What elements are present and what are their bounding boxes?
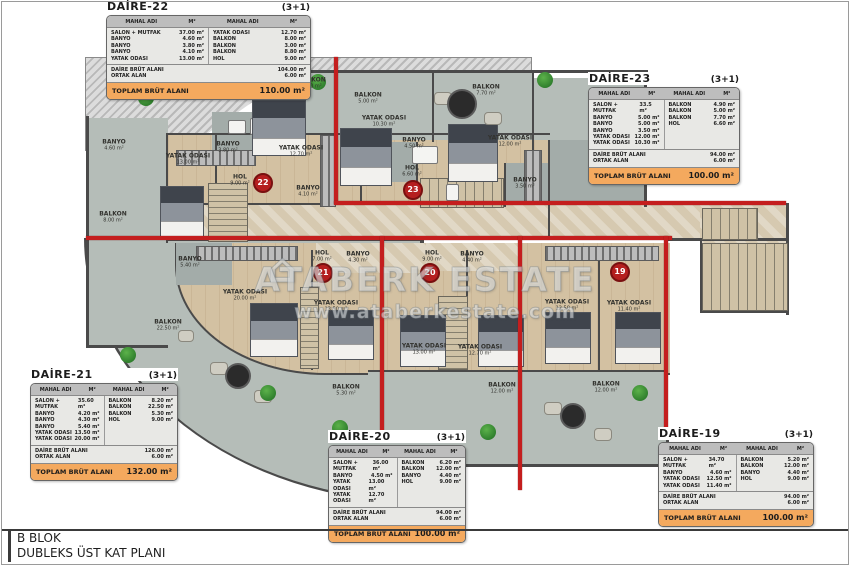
room-label-area: 8.00 m²: [99, 219, 127, 225]
room-row: SALON + MUTFAK35.60 m²: [35, 398, 100, 411]
table-summary: DAİRE BRÜT ALANI94.00 m²ORTAK ALAN6.00 m…: [589, 149, 739, 167]
unit-type: (3+1): [282, 3, 310, 13]
room-label-area: 5.40 m²: [178, 264, 201, 270]
unit-header: DAİRE-23(3+1): [588, 72, 740, 85]
unit-number-badge: 20: [420, 263, 440, 283]
room-row: YATAK ODASI13.00 m²: [111, 56, 204, 62]
wall: [532, 72, 534, 152]
room-label: HOL9.00 m²: [422, 251, 442, 264]
unit-area-table: MAHAL ADIM²MAHAL ADIM²SALON + MUTFAK35.6…: [30, 383, 178, 481]
room-name: HOL: [741, 476, 753, 482]
bed: [448, 124, 498, 182]
room-label-area: 4.50 m²: [402, 145, 425, 151]
staircase: [702, 243, 788, 311]
room-label: BALKON5.00 m²: [354, 93, 382, 106]
room-area: 33.5 m²: [639, 102, 659, 115]
unit-divider-line: [664, 236, 668, 430]
unit-divider-line: [518, 236, 522, 490]
table-summary: DAİRE BRÜT ALANI94.00 m²ORTAK ALAN6.00 m…: [659, 491, 813, 509]
room-label: YATAK ODASI12.50 m²: [545, 300, 589, 313]
room-area: 10.30 m²: [635, 140, 660, 146]
column-header: MAHAL ADI: [329, 449, 375, 455]
bed: [400, 315, 446, 367]
room-area: 36.00 m²: [373, 460, 393, 473]
unit-area-table: MAHAL ADIM²MAHAL ADIM²SALON + MUTFAK34.7…: [658, 442, 814, 527]
unit-area-table: MAHAL ADIM²MAHAL ADIM²SALON + MUTFAK33.5…: [588, 87, 740, 185]
total-row: TOPLAM BRÜT ALANI132.00 m²: [31, 463, 177, 480]
unit-type: (3+1): [149, 371, 177, 381]
table-column-headers: MAHAL ADIM²MAHAL ADIM²: [329, 446, 465, 458]
room-label-area: 4.60 m²: [102, 147, 125, 153]
column-header: M²: [443, 449, 465, 455]
table-body: SALON + MUTFAK37.00 m²BANYO4.60 m²BANYO3…: [107, 28, 310, 64]
room-label-area: 4.30 m²: [346, 259, 369, 265]
total-label: TOPLAM BRÜT ALANI: [594, 172, 671, 180]
unit-type: (3+1): [785, 430, 813, 440]
room-label: BANYO4.10 m²: [296, 186, 319, 199]
summary-row: ORTAK ALAN6.00 m²: [111, 73, 306, 79]
summary-label: ORTAK ALAN: [333, 516, 369, 522]
room-name: HOL: [109, 417, 121, 423]
unit-header: DAİRE-19(3+1): [658, 427, 814, 440]
room-row: SALON + MUTFAK36.00 m²: [333, 460, 393, 473]
room-label-area: 5.00 m²: [354, 100, 382, 106]
total-value: 132.00 m²: [127, 467, 173, 476]
room-label: HOL9.00 m²: [230, 175, 250, 188]
unit-title: DAİRE-23: [589, 72, 651, 85]
room-label-area: 13.00 m²: [166, 161, 210, 167]
unit-table-daire-23: DAİRE-23(3+1)MAHAL ADIM²MAHAL ADIM²SALON…: [588, 72, 740, 185]
column-header: MAHAL ADI: [736, 446, 788, 452]
column-header: MAHAL ADI: [209, 19, 277, 25]
room-row: HOL9.00 m²: [741, 476, 810, 482]
column-header: M²: [80, 387, 104, 393]
wall: [598, 250, 600, 370]
bathroom-fixture: [446, 184, 459, 201]
bed: [545, 312, 591, 364]
plant-icon: [480, 424, 496, 440]
column-header: M²: [711, 446, 736, 452]
table-body-column: SALON + MUTFAK36.00 m²BANYO4.50 m²YATAK …: [329, 458, 397, 507]
wall: [86, 116, 89, 348]
room-label-area: 3.80 m²: [216, 149, 239, 155]
unit-title: DAİRE-22: [107, 0, 169, 13]
room-name: YATAK ODASI: [111, 56, 148, 62]
table-body-column: SALON + MUTFAK34.70 m²BANYO4.60 m²YATAK …: [659, 455, 736, 491]
table-body: SALON + MUTFAK34.70 m²BANYO4.60 m²YATAK …: [659, 455, 813, 491]
unit-title: DAİRE-19: [659, 427, 721, 440]
plant-icon: [260, 385, 276, 401]
total-label: TOPLAM BRÜT ALANI: [112, 87, 189, 95]
room-row: SALON + MUTFAK33.5 m²: [593, 102, 660, 115]
summary-row: ORTAK ALAN6.00 m²: [593, 158, 735, 164]
unit-divider-line: [86, 236, 672, 240]
room-label: BALKON22.50 m²: [154, 320, 182, 333]
summary-value: 6.00 m²: [788, 500, 809, 506]
bathroom-fixture: [228, 120, 246, 134]
summary-value: 6.00 m²: [152, 454, 173, 460]
room-label: YATAK ODASI12.70 m²: [458, 345, 502, 358]
unit-table-daire-19: DAİRE-19(3+1)MAHAL ADIM²MAHAL ADIM²SALON…: [658, 427, 814, 527]
room-label: BALKON5.30 m²: [332, 385, 360, 398]
table-body-column: BALKON5.20 m²BALKON12.00 m²BANYO4.40 m²H…: [736, 455, 814, 491]
plant-icon: [632, 385, 648, 401]
column-header: M²: [640, 91, 664, 97]
summary-row: ORTAK ALAN6.00 m²: [35, 454, 173, 460]
room-row: YATAK ODASI11.40 m²: [663, 483, 732, 489]
total-value: 110.00 m²: [260, 86, 306, 95]
room-label-area: 10.30 m²: [362, 123, 406, 129]
room-area: 35.60 m²: [78, 398, 100, 411]
total-row: TOPLAM BRÜT ALANI100.00 m²: [659, 509, 813, 526]
total-value: 100.00 m²: [689, 171, 735, 180]
room-name: YATAK ODASI: [593, 140, 630, 146]
title-block-divider: [2, 529, 848, 531]
table-summary: DAİRE BRÜT ALANI126.00 m²ORTAK ALAN6.00 …: [31, 445, 177, 463]
plant-icon: [537, 72, 553, 88]
room-area: 12.70 m²: [368, 492, 392, 505]
staircase: [208, 183, 248, 242]
wardrobe: [196, 246, 298, 261]
room-area: 9.00 m²: [440, 479, 461, 485]
table-summary: DAİRE BRÜT ALANI94.00 m²ORTAK ALAN6.00 m…: [329, 507, 465, 525]
unit-number-badge: 22: [253, 173, 273, 193]
summary-row: ORTAK ALAN6.00 m²: [663, 500, 809, 506]
room-label-area: 22.50 m²: [154, 327, 182, 333]
unit-header: DAİRE-21(3+1): [30, 368, 178, 381]
room-label-area: 4.40 m²: [460, 259, 483, 265]
bed: [250, 303, 298, 357]
room-label: BANYO4.60 m²: [102, 140, 125, 153]
plan-title: DUBLEKS ÜST KAT PLANI: [17, 546, 165, 560]
unit-number-badge: 21: [313, 263, 333, 283]
unit-divider-line: [334, 201, 786, 205]
room-area: 9.00 m²: [788, 476, 809, 482]
table-body-column: BALKON4.90 m²BALKON5.00 m²BALKON7.70 m²H…: [664, 100, 740, 149]
unit-type: (3+1): [437, 433, 465, 443]
room-name: YATAK ODASI: [333, 492, 368, 505]
total-value: 100.00 m²: [763, 513, 809, 522]
room-label: BALKON8.00 m²: [99, 212, 127, 225]
table-column-headers: MAHAL ADIM²MAHAL ADIM²: [31, 384, 177, 396]
room-label-area: 7.70 m²: [472, 92, 500, 98]
room-area: 13.00 m²: [179, 56, 204, 62]
wardrobe: [545, 246, 659, 261]
bed: [160, 186, 204, 238]
table-body-column: YATAK ODASI12.70 m²BALKON8.00 m²BALKON3.…: [208, 28, 310, 64]
unit-header: DAİRE-20(3+1): [328, 430, 466, 443]
room-label-area: 20.00 m²: [223, 297, 267, 303]
room-label: BALKON12.00 m²: [592, 382, 620, 395]
room-label: BALKON7.70 m²: [472, 85, 500, 98]
title-block-left-bar: [8, 531, 11, 562]
summary-label: ORTAK ALAN: [35, 454, 71, 460]
room-label: BANYO4.40 m²: [460, 252, 483, 265]
wall: [432, 72, 434, 142]
room-label: YATAK ODASI12.00 m²: [488, 136, 532, 149]
room-area: 6.60 m²: [714, 121, 735, 127]
unit-divider-line: [380, 236, 384, 432]
room-row: YATAK ODASI13.00 m²: [333, 479, 393, 492]
summary-value: 6.00 m²: [714, 158, 735, 164]
room-label-area: 12.00 m²: [592, 389, 620, 395]
room-label: HOL6.60 m²: [402, 166, 422, 179]
room-name: SALON + MUTFAK: [663, 457, 709, 470]
room-area: 9.00 m²: [285, 56, 306, 62]
room-label-area: 11.40 m²: [607, 308, 651, 314]
room-row: YATAK ODASI10.30 m²: [593, 140, 660, 146]
room-name: SALON + MUTFAK: [333, 460, 373, 473]
table-furniture: [560, 403, 586, 429]
summary-row: ORTAK ALAN6.00 m²: [333, 516, 461, 522]
column-header: MAHAL ADI: [104, 387, 153, 393]
bed: [328, 310, 374, 360]
column-header: MAHAL ADI: [659, 446, 711, 452]
room-label-area: 5.30 m²: [332, 392, 360, 398]
balcony-region: [88, 118, 168, 345]
room-area: 11.40 m²: [707, 483, 732, 489]
staircase: [702, 208, 758, 240]
room-name: HOL: [402, 479, 414, 485]
unit-table-daire-20: DAİRE-20(3+1)MAHAL ADIM²MAHAL ADIM²SALON…: [328, 430, 466, 543]
table-body-column: BALKON8.20 m²BALKON22.50 m²BALKON5.30 m²…: [104, 396, 178, 445]
room-name: YATAK ODASI: [35, 436, 72, 442]
total-row: TOPLAM BRÜT ALANI100.00 m²: [589, 167, 739, 184]
summary-value: 6.00 m²: [285, 73, 306, 79]
room-label: BANYO4.30 m²: [346, 252, 369, 265]
total-row: TOPLAM BRÜT ALANI100.00 m²: [329, 525, 465, 542]
room-name: SALON + MUTFAK: [593, 102, 639, 115]
unit-title: DAİRE-20: [329, 430, 391, 443]
table-body-column: SALON + MUTFAK37.00 m²BANYO4.60 m²BANYO3…: [107, 28, 208, 64]
table-column-headers: MAHAL ADIM²MAHAL ADIM²: [589, 88, 739, 100]
unit-area-table: MAHAL ADIM²MAHAL ADIM²SALON + MUTFAK36.0…: [328, 445, 466, 543]
column-header: MAHAL ADI: [107, 19, 175, 25]
bed: [340, 128, 392, 186]
unit-title: DAİRE-21: [31, 368, 93, 381]
room-row: HOL9.00 m²: [213, 56, 306, 62]
summary-value: 6.00 m²: [440, 516, 461, 522]
table-body: SALON + MUTFAK36.00 m²BANYO4.50 m²YATAK …: [329, 458, 465, 507]
block-label: B BLOK: [17, 531, 61, 545]
chair-furniture: [484, 112, 502, 125]
room-label: YATAK ODASI13.50 m²: [314, 301, 358, 314]
room-label-area: 13.50 m²: [314, 308, 358, 314]
total-label: TOPLAM BRÜT ALANI: [36, 468, 113, 476]
corridor-region: [166, 205, 788, 240]
bed: [615, 312, 661, 364]
table-body: SALON + MUTFAK33.5 m²BANYO5.00 m²BANYO5.…: [589, 100, 739, 149]
room-row: YATAK ODASI20.00 m²: [35, 436, 100, 442]
room-label: HOL7.00 m²: [312, 251, 332, 264]
unit-header: DAİRE-22(3+1): [106, 0, 311, 13]
hall-floor: [316, 243, 432, 273]
room-label: BANYO3.50 m²: [513, 178, 536, 191]
room-area: 13.00 m²: [368, 479, 392, 492]
total-label: TOPLAM BRÜT ALANI: [664, 514, 741, 522]
column-header: MAHAL ADI: [589, 91, 640, 97]
table-body-column: SALON + MUTFAK35.60 m²BANYO4.20 m²BANYO4…: [31, 396, 104, 445]
room-label: YATAK ODASI13.00 m²: [402, 344, 446, 357]
column-header: M²: [375, 449, 397, 455]
column-header: M²: [788, 446, 813, 452]
room-row: SALON + MUTFAK34.70 m²: [663, 457, 732, 470]
plant-icon: [120, 347, 136, 363]
room-row: HOL6.60 m²: [669, 121, 736, 127]
column-header: MAHAL ADI: [664, 91, 715, 97]
unit-type: (3+1): [711, 75, 739, 85]
column-header: MAHAL ADI: [397, 449, 443, 455]
unit-number-badge: 23: [403, 180, 423, 200]
room-label-area: 12.00 m²: [488, 390, 516, 396]
table-column-headers: MAHAL ADIM²MAHAL ADIM²: [107, 16, 310, 28]
room-label-area: 12.00 m²: [488, 143, 532, 149]
room-label: BANYO5.40 m²: [178, 257, 201, 270]
room-label-area: 13.00 m²: [402, 351, 446, 357]
summary-label: ORTAK ALAN: [593, 158, 629, 164]
wall: [548, 140, 550, 240]
room-label: YATAK ODASI11.40 m²: [607, 301, 651, 314]
column-header: M²: [175, 19, 208, 25]
column-header: M²: [715, 91, 739, 97]
room-area: 34.70 m²: [709, 457, 732, 470]
room-label-area: 6.60 m²: [402, 173, 422, 179]
room-area: 20.00 m²: [75, 436, 100, 442]
summary-label: ORTAK ALAN: [663, 500, 699, 506]
table-body-column: SALON + MUTFAK33.5 m²BANYO5.00 m²BANYO5.…: [589, 100, 664, 149]
room-label-area: 4.10 m²: [296, 193, 319, 199]
room-area: 9.00 m²: [152, 417, 173, 423]
room-row: HOL9.00 m²: [109, 417, 174, 423]
room-row: YATAK ODASI12.70 m²: [333, 492, 393, 505]
table-body-column: BALKON6.20 m²BALKON12.00 m²BANYO4.40 m²H…: [397, 458, 466, 507]
room-name: SALON + MUTFAK: [35, 398, 78, 411]
room-label-area: 12.50 m²: [545, 307, 589, 313]
table-summary: DAİRE BRÜT ALANI104.00 m²ORTAK ALAN6.00 …: [107, 64, 310, 82]
room-name: HOL: [213, 56, 225, 62]
total-row: TOPLAM BRÜT ALANI110.00 m²: [107, 82, 310, 99]
room-label: BANYO3.80 m²: [216, 142, 239, 155]
column-header: M²: [153, 387, 177, 393]
summary-label: ORTAK ALAN: [111, 73, 147, 79]
unit-area-table: MAHAL ADIM²MAHAL ADIM²SALON + MUTFAK37.0…: [106, 15, 311, 100]
unit-table-daire-22: DAİRE-22(3+1)MAHAL ADIM²MAHAL ADIM²SALON…: [106, 0, 311, 100]
room-label-area: 3.50 m²: [513, 185, 536, 191]
room-label-area: 9.00 m²: [230, 182, 250, 188]
column-header: MAHAL ADI: [31, 387, 80, 393]
column-header: M²: [277, 19, 310, 25]
chair-furniture: [594, 428, 612, 441]
room-label: YATAK ODASI13.00 m²: [166, 154, 210, 167]
room-label: BALKON12.00 m²: [488, 383, 516, 396]
room-label: YATAK ODASI20.00 m²: [223, 290, 267, 303]
table-column-headers: MAHAL ADIM²MAHAL ADIM²: [659, 443, 813, 455]
unit-divider-line: [334, 57, 338, 204]
plan-sheet: BALKON8.00 m²BANYO4.60 m²YATAK ODASI13.0…: [0, 0, 850, 566]
room-label-area: 12.70 m²: [458, 352, 502, 358]
table-furniture: [225, 363, 251, 389]
room-label: YATAK ODASI10.30 m²: [362, 116, 406, 129]
table-body: SALON + MUTFAK35.60 m²BANYO4.20 m²BANYO4…: [31, 396, 177, 445]
room-name: HOL: [669, 121, 681, 127]
unit-table-daire-21: DAİRE-21(3+1)MAHAL ADIM²MAHAL ADIM²SALON…: [30, 368, 178, 481]
room-label: BANYO4.50 m²: [402, 138, 425, 151]
room-label: YATAK ODASI12.70 m²: [279, 146, 323, 159]
room-row: HOL9.00 m²: [402, 479, 462, 485]
room-name: YATAK ODASI: [333, 479, 368, 492]
room-label-area: 12.70 m²: [279, 153, 323, 159]
room-name: YATAK ODASI: [663, 483, 700, 489]
unit-number-badge: 19: [610, 262, 630, 282]
